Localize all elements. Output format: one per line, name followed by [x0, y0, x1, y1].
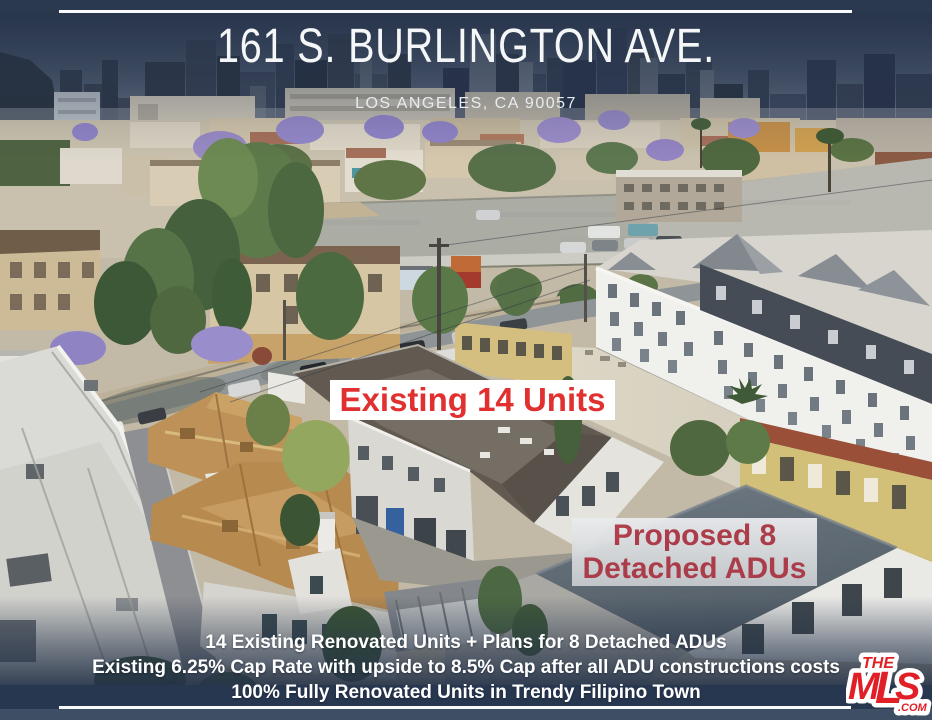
svg-text:.COM: .COM [898, 702, 928, 714]
